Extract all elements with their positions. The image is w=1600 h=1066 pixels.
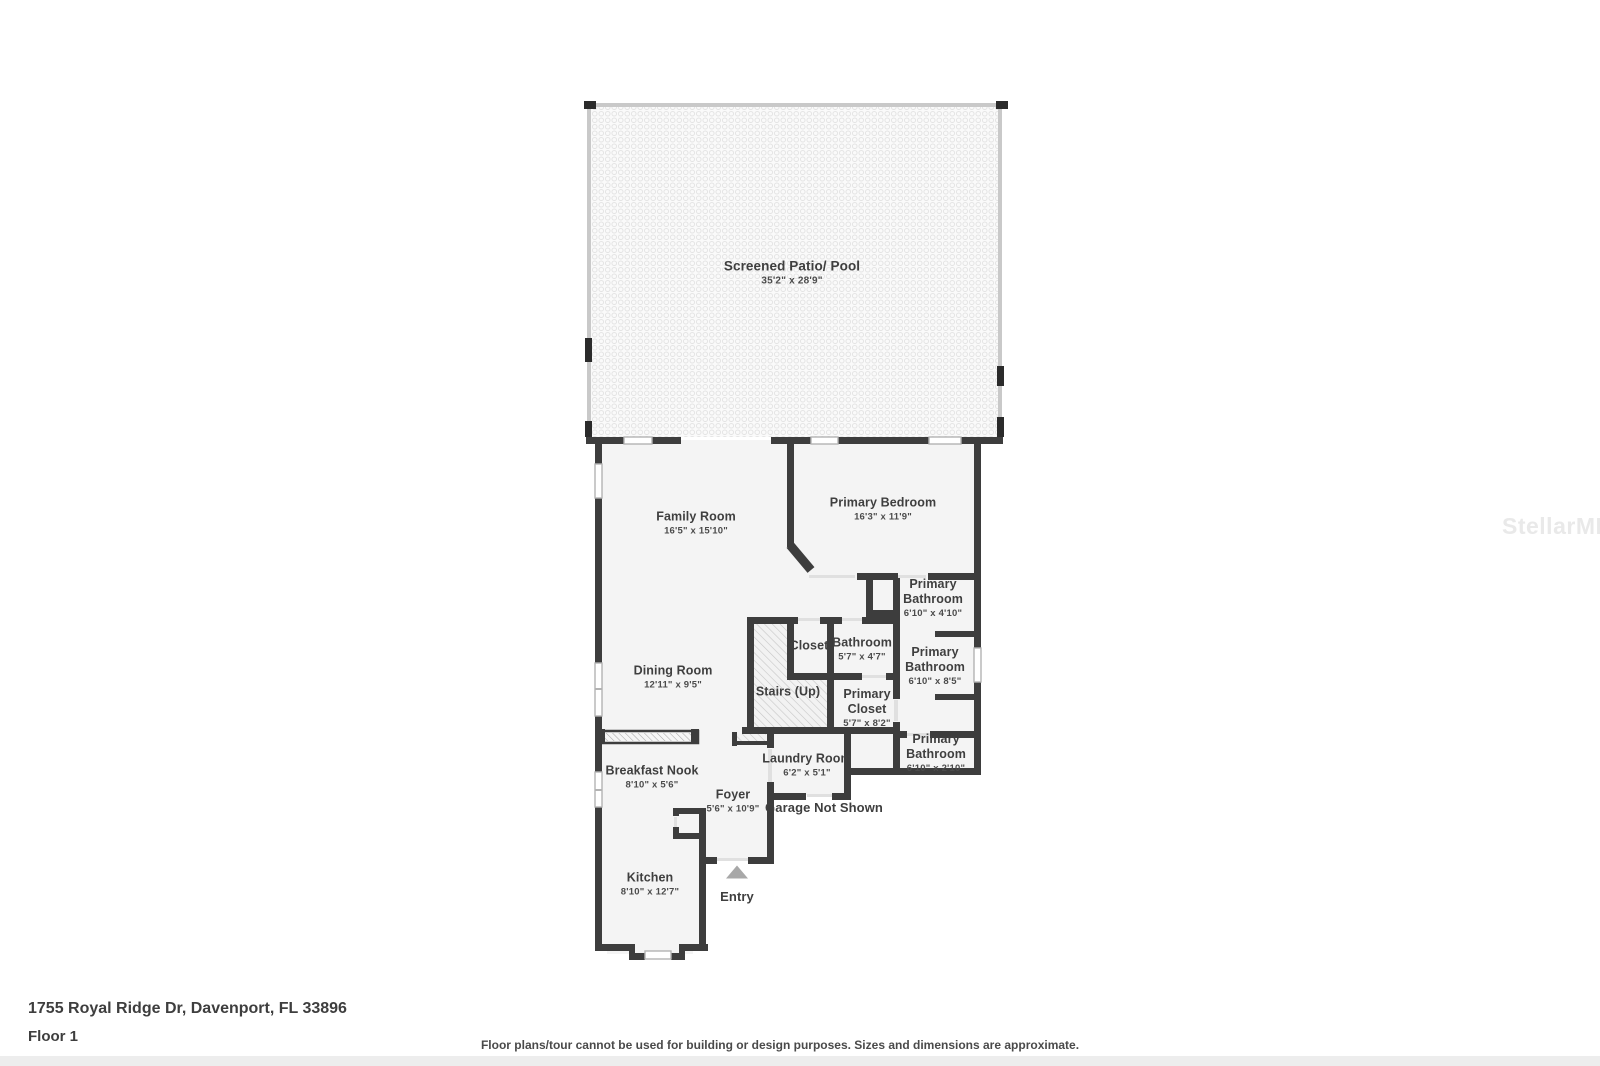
half-wall-bar <box>597 729 699 744</box>
room-dims: 12'11" x 9'5" <box>634 679 713 690</box>
room-dims: 5'7" x 4'7" <box>832 651 892 662</box>
room-label-dining-room: Dining Room 12'11" x 9'5" <box>634 663 713 690</box>
room-dims: 8'10" x 12'7" <box>621 886 679 897</box>
room-name: Breakfast Nook <box>605 763 698 778</box>
room-name: Dining Room <box>634 663 713 678</box>
room-name: Entry <box>720 889 754 905</box>
room-dims: 16'3" x 11'9" <box>830 511 936 522</box>
entry-label: Entry <box>720 889 754 905</box>
room-dims: 5'6" x 10'9" <box>707 803 760 814</box>
room-dims: 6'10" x 4'10" <box>892 608 974 619</box>
room-name: Family Room <box>656 509 736 524</box>
garage-not-shown-label: Garage Not Shown <box>765 800 883 816</box>
room-label-closet: Closet <box>790 639 829 654</box>
bottom-edge-strip <box>0 1056 1600 1066</box>
room-label-stairs-up: Stairs (Up) <box>756 685 820 700</box>
room-label-screened-patio-pool: Screened Patio/ Pool 35'2" x 28'9" <box>724 258 860 287</box>
room-dims: 35'2" x 28'9" <box>724 276 860 288</box>
room-label-bathroom: Bathroom 5'7" x 4'7" <box>832 635 892 662</box>
room-name: Primary Bathroom <box>894 645 976 675</box>
room-name: Primary Closet <box>831 687 903 717</box>
room-name: Screened Patio/ Pool <box>724 258 860 274</box>
room-dims: 16'5" x 15'10" <box>656 525 736 536</box>
room-label-laundry-room: Laundry Room 6'2" x 5'1" <box>762 751 851 778</box>
room-label-family-room: Family Room 16'5" x 15'10" <box>656 509 736 536</box>
disclaimer-text: Floor plans/tour cannot be used for buil… <box>481 1038 1079 1052</box>
room-name: Bathroom <box>832 635 892 650</box>
entry-direction-icon <box>726 866 748 879</box>
property-address: 1755 Royal Ridge Dr, Davenport, FL 33896 <box>28 1000 347 1018</box>
room-name: Primary Bedroom <box>830 495 936 510</box>
room-dims: 6'2" x 5'1" <box>762 767 851 778</box>
room-label-kitchen: Kitchen 8'10" x 12'7" <box>621 870 679 897</box>
floor-plan-page: Screened Patio/ Pool 35'2" x 28'9" Famil… <box>0 0 1600 1066</box>
room-label-breakfast-nook: Breakfast Nook 8'10" x 5'6" <box>605 763 698 790</box>
room-dims: 5'7" x 8'2" <box>831 718 903 729</box>
room-label-primary-closet: Primary Closet 5'7" x 8'2" <box>831 687 903 729</box>
room-label-foyer: Foyer 5'6" x 10'9" <box>707 787 760 814</box>
room-label-primary-bathroom-3: Primary Bathroom 6'10" x 2'10" <box>895 732 977 774</box>
room-name: Primary Bathroom <box>892 577 974 607</box>
room-name: Foyer <box>707 787 760 802</box>
room-dims: 6'10" x 2'10" <box>895 763 977 774</box>
room-label-primary-bathroom-2: Primary Bathroom 6'10" x 8'5" <box>894 645 976 687</box>
stellar-mls-watermark: StellarMLS <box>1502 513 1600 540</box>
floor-label: Floor 1 <box>28 1028 78 1045</box>
room-name: Primary Bathroom <box>895 732 977 762</box>
room-dims: 6'10" x 8'5" <box>894 676 976 687</box>
room-name: Laundry Room <box>762 751 851 766</box>
room-dims: 8'10" x 5'6" <box>605 779 698 790</box>
floor-plan-drawing <box>0 0 1600 1066</box>
room-name: Kitchen <box>621 870 679 885</box>
room-name: Closet <box>790 639 829 654</box>
room-name: Stairs (Up) <box>756 685 820 700</box>
room-label-primary-bedroom: Primary Bedroom 16'3" x 11'9" <box>830 495 936 522</box>
room-name: Garage Not Shown <box>765 800 883 816</box>
room-label-primary-bathroom-1: Primary Bathroom 6'10" x 4'10" <box>892 577 974 619</box>
